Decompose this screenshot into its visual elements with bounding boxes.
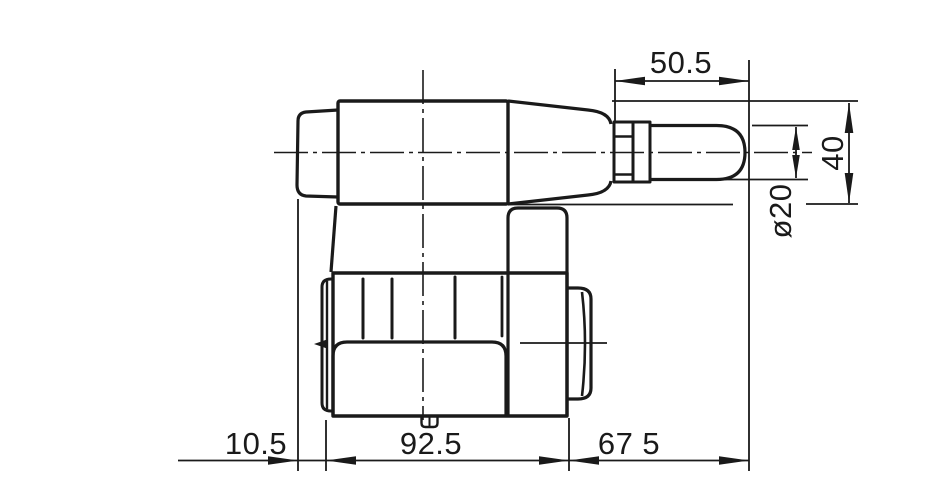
arrow-50-5-left bbox=[615, 77, 645, 86]
body-rib-lines bbox=[363, 279, 392, 338]
neck-left-edge bbox=[331, 206, 336, 272]
arrow-92-5-right bbox=[539, 456, 569, 465]
arrow-50-5-right bbox=[719, 77, 749, 86]
dim-label-pin-length: 50.5 bbox=[650, 45, 712, 80]
arrow-92-5-left bbox=[326, 456, 356, 465]
solenoid-taper-bottom-edge bbox=[508, 181, 611, 204]
dim-label-pin-diameter: ø20 bbox=[763, 184, 798, 239]
body-lower-section-outline bbox=[333, 342, 506, 415]
technical-drawing-canvas: 50.5 40 ø20 10.5 92.5 67 5 bbox=[0, 0, 951, 486]
retaining-nut-groove-lines bbox=[614, 137, 633, 175]
arrow-67-5-right bbox=[719, 456, 749, 465]
arrow-40-bottom bbox=[845, 173, 854, 203]
solenoid-mount-block-outline bbox=[508, 208, 567, 416]
solenoid-taper-top-edge bbox=[508, 101, 611, 124]
solenoid-valve-drawing: 50.5 40 ø20 10.5 92.5 67 5 bbox=[0, 0, 951, 486]
arrow-dia20-bottom bbox=[792, 155, 800, 178]
dim-label-body-length: 92.5 bbox=[400, 426, 462, 461]
dim-label-right-length: 67 5 bbox=[598, 426, 660, 461]
dim-label-coil-height: 40 bbox=[815, 135, 850, 170]
valve-body-outline bbox=[333, 273, 567, 416]
solenoid-end-cap-outline bbox=[297, 110, 338, 197]
arrow-dia20-top bbox=[792, 127, 800, 150]
dim-label-left-offset: 10.5 bbox=[225, 426, 287, 461]
arrow-40-top bbox=[845, 103, 854, 133]
connector-face-line bbox=[582, 292, 585, 396]
arrow-67-5-left bbox=[569, 456, 599, 465]
